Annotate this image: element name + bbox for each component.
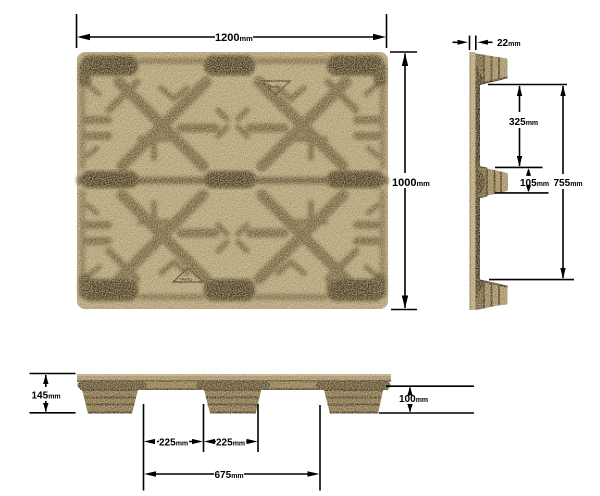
- svg-text:325mm: 325mm: [509, 117, 538, 128]
- svg-text:755mm: 755mm: [554, 178, 583, 189]
- svg-text:22mm: 22mm: [497, 38, 521, 49]
- svg-text:145mm: 145mm: [32, 391, 61, 402]
- svg-text:225mm: 225mm: [216, 438, 245, 449]
- svg-text:1000mm: 1000mm: [392, 177, 430, 189]
- svg-text:105mm: 105mm: [520, 178, 549, 189]
- svg-text:675mm: 675mm: [215, 470, 244, 481]
- svg-text:100mm: 100mm: [399, 394, 428, 405]
- svg-text:ThoYu: ThoYu: [268, 84, 281, 89]
- svg-text:ThoYu: ThoYu: [180, 277, 193, 282]
- svg-text:1200mm: 1200mm: [215, 32, 253, 44]
- svg-text:225mm: 225mm: [159, 438, 188, 449]
